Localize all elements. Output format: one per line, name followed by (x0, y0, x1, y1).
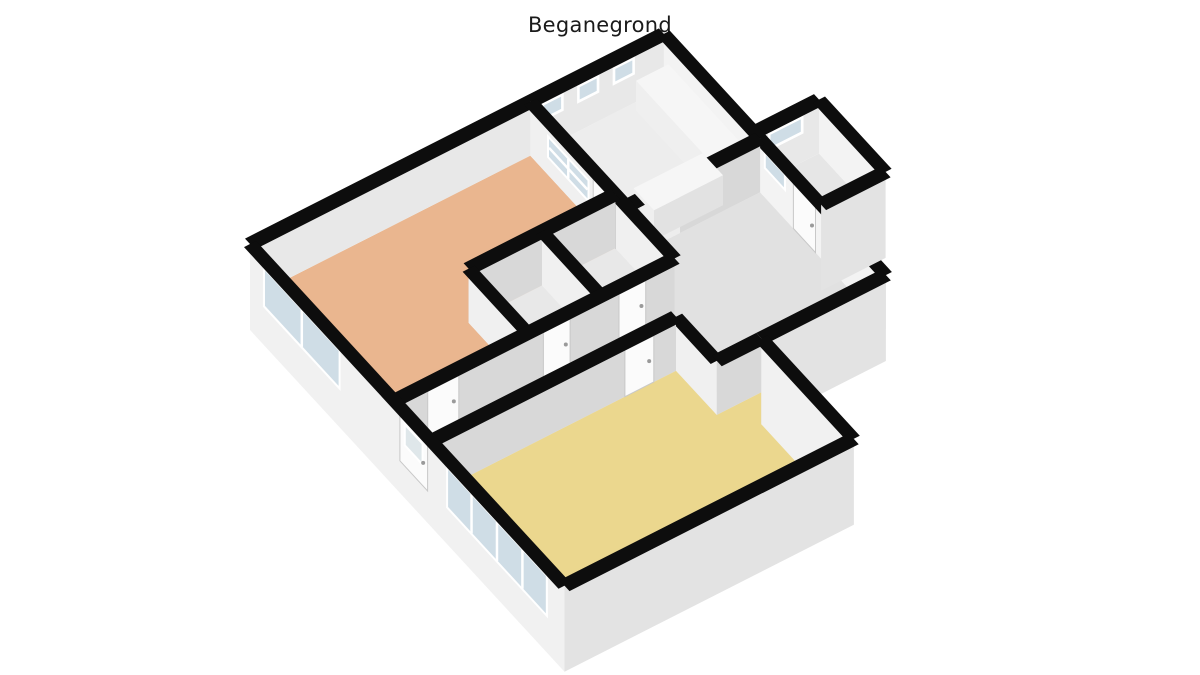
door-handle-icon (810, 224, 814, 228)
door-handle-icon (421, 461, 425, 465)
floorplan-canvas (0, 0, 1200, 675)
door-handle-icon (564, 342, 568, 346)
door-handle-icon (647, 359, 651, 363)
door-handle-icon (452, 399, 456, 403)
door-handle-icon (639, 304, 643, 308)
floorplan-figure: Beganegrond (0, 0, 1200, 675)
